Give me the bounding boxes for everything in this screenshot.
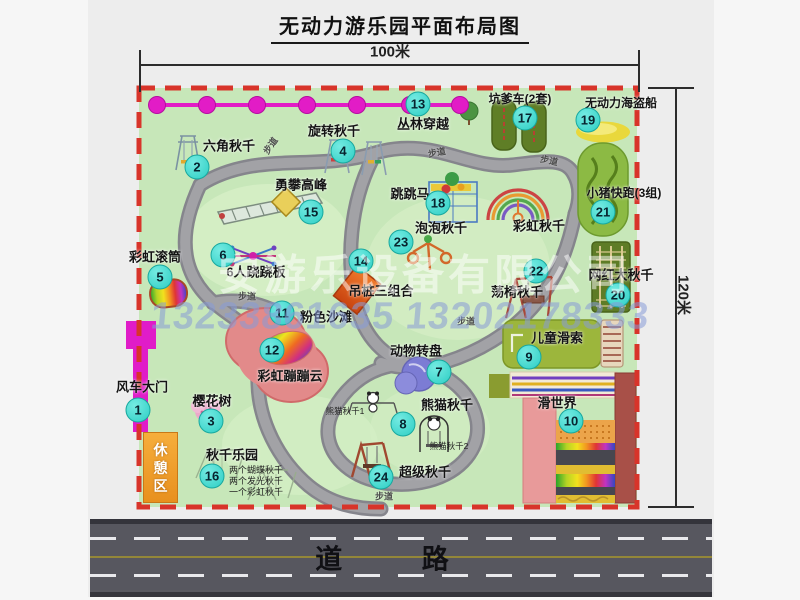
marker-17-num: 17 [518, 112, 532, 125]
marker-6-num: 6 [219, 249, 226, 262]
width-dimension-label: 100米 [370, 41, 410, 62]
park-layout-screenshot: 无动力游乐园平面布局图 [0, 0, 800, 600]
marker-2-num: 2 [193, 161, 200, 174]
rest-area-label: 休憩区 [153, 441, 169, 495]
label-big-swing: 网红大秋千 [588, 269, 653, 282]
label-rainbow-roller: 彩虹滚筒 [129, 251, 181, 264]
label-swing-park: 秋千乐园 [206, 449, 258, 462]
label-kids-zipline: 儿童滑索 [531, 332, 583, 345]
marker-15-num: 15 [304, 206, 318, 219]
marker-10: 10 [559, 409, 584, 434]
rest-area-zone: 休憩区 [143, 432, 178, 503]
marker-20: 20 [606, 283, 631, 308]
marker-10-num: 10 [564, 415, 578, 428]
marker-15: 15 [299, 200, 324, 225]
path-label-5: 步道 [457, 318, 475, 327]
label-hexagon-swing: 六角秋千 [203, 140, 255, 153]
label-hanging-piles: 吊桩三组合 [348, 285, 413, 298]
label-pink-beach: 粉色沙滩 [300, 311, 352, 324]
label-rotating-swing: 旋转秋千 [308, 125, 360, 138]
marker-23-num: 23 [394, 236, 408, 249]
marker-1-num: 1 [134, 404, 141, 417]
marker-24: 24 [369, 465, 394, 490]
sublabel-panda-swing-2: 熊猫秋千2 [430, 442, 469, 451]
marker-5-num: 5 [156, 271, 163, 284]
path-label-4: 步道 [238, 293, 256, 302]
sublabel-panda-swing-1: 熊猫秋千1 [326, 407, 365, 416]
swing-note-2: 两个发光秋千 [229, 476, 283, 487]
marker-21-num: 21 [596, 206, 610, 219]
marker-4: 4 [331, 139, 356, 164]
path-label-6: 步道 [375, 493, 393, 502]
label-piggy-run: 小猪快跑(3组) [587, 187, 662, 199]
marker-9: 9 [517, 345, 542, 370]
swing-park-notes: 两个蝴蝶秋千 两个发光秋千 一个彩虹秋千 [229, 465, 283, 498]
marker-4-num: 4 [339, 145, 346, 158]
road-label: 道 路 [315, 538, 485, 577]
marker-16: 16 [200, 464, 225, 489]
marker-14-num: 14 [354, 255, 368, 268]
marker-3: 3 [199, 409, 224, 434]
marker-18-num: 18 [431, 197, 445, 210]
marker-11: 11 [270, 301, 295, 326]
label-pit-cars: 坑爹车(2套) [489, 93, 552, 105]
marker-13-num: 13 [411, 98, 425, 111]
label-cherry-tree: 樱花树 [192, 395, 231, 408]
marker-23: 23 [389, 230, 414, 255]
label-bounce-cloud: 彩虹蹦蹦云 [257, 370, 322, 383]
marker-19: 19 [576, 108, 601, 133]
marker-22-num: 22 [529, 265, 543, 278]
marker-8: 8 [391, 412, 416, 437]
label-super-swing: 超级秋千 [399, 466, 451, 479]
marker-12: 12 [260, 338, 285, 363]
marker-7-num: 7 [435, 366, 442, 379]
marker-11-num: 11 [275, 307, 289, 320]
swing-note-3: 一个彩虹秋千 [229, 487, 283, 498]
label-bubble-swing: 泡泡秋千 [415, 222, 467, 235]
label-panda-swing: 熊猫秋千 [421, 399, 473, 412]
marker-8-num: 8 [399, 418, 406, 431]
marker-13: 13 [406, 92, 431, 117]
swing-note-1: 两个蝴蝶秋千 [229, 465, 283, 476]
label-climbing-course: 勇攀高峰 [275, 179, 327, 192]
marker-19-num: 19 [581, 114, 595, 127]
marker-21: 21 [591, 200, 616, 225]
marker-17: 17 [513, 106, 538, 131]
marker-22: 22 [524, 259, 549, 284]
marker-6: 6 [211, 243, 236, 268]
marker-16-num: 16 [205, 470, 219, 483]
marker-1: 1 [126, 398, 151, 423]
marker-14: 14 [349, 249, 374, 274]
marker-12-num: 12 [265, 344, 279, 357]
marker-2: 2 [185, 155, 210, 180]
marker-20-num: 20 [611, 289, 625, 302]
label-pirate-ship: 无动力海盗船 [585, 97, 657, 109]
label-animal-carousel: 动物转盘 [390, 345, 442, 358]
label-seesaw: 6人跷跷板 [226, 266, 285, 279]
marker-9-num: 9 [525, 351, 532, 364]
marker-5: 5 [148, 265, 173, 290]
height-dimension-label: 120米 [674, 275, 695, 315]
label-rainbow-swing: 彩虹秋千 [513, 220, 565, 233]
label-jumping-horse: 跳跳马 [390, 188, 429, 201]
marker-24-num: 24 [374, 471, 388, 484]
label-windmill-gate: 风车大门 [116, 381, 168, 394]
marker-7: 7 [427, 360, 452, 385]
label-chair-swing: 荡椅秋千 [491, 286, 543, 299]
marker-18: 18 [426, 191, 451, 216]
label-jungle-crossing: 丛林穿越 [397, 118, 449, 131]
marker-3-num: 3 [207, 415, 214, 428]
